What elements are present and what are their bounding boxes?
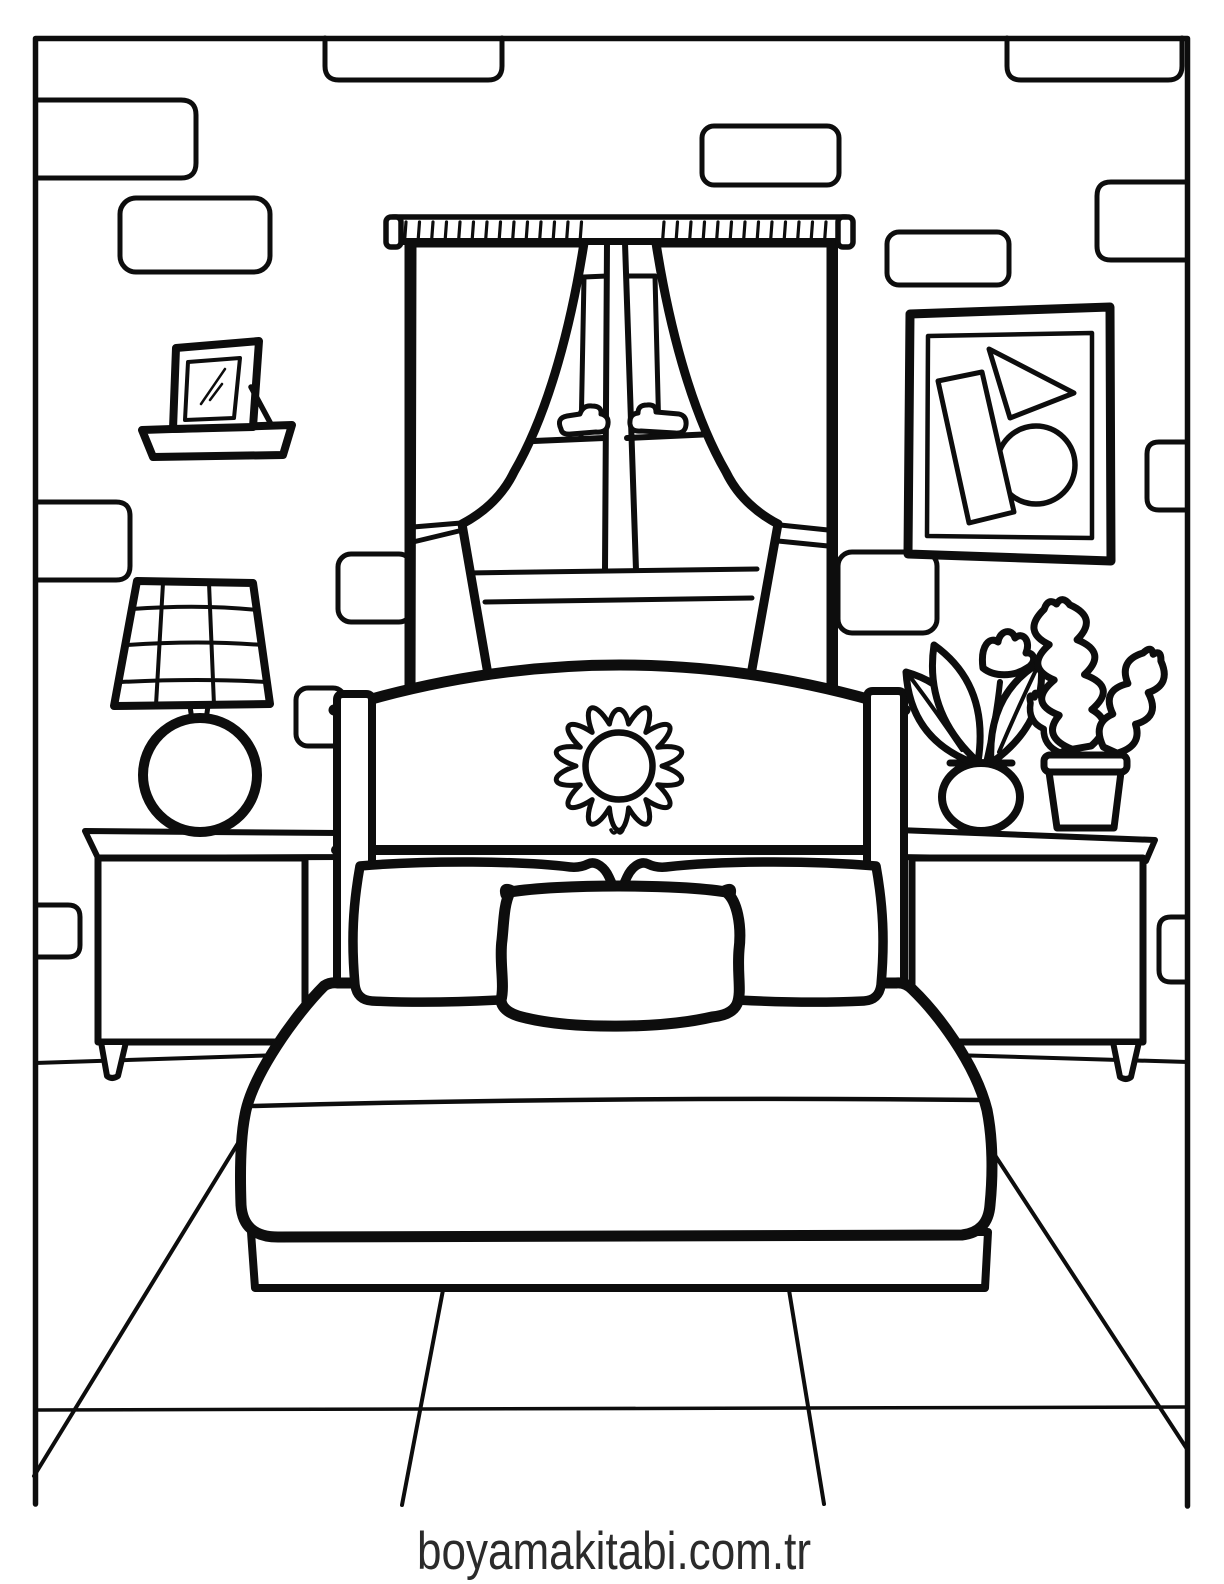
svg-text:boyamakitabi.com.tr: boyamakitabi.com.tr	[417, 1522, 811, 1581]
